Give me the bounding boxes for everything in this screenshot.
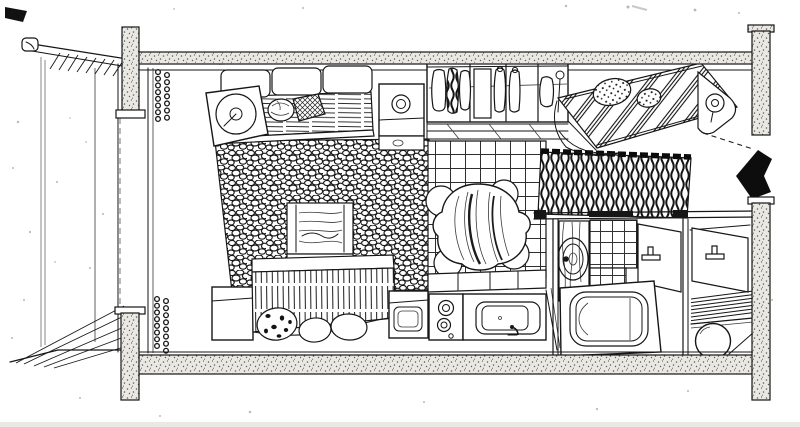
bathtub: [560, 281, 661, 356]
nightstand: [389, 291, 428, 338]
kitchen-sink: [463, 294, 546, 340]
scan-edge-band: [0, 422, 800, 427]
kitchen-cooktop: [429, 294, 463, 340]
sofa-back-cushion: [272, 68, 321, 95]
wash-basin: [696, 324, 731, 359]
kitchen: [428, 270, 560, 350]
floor-plan-drawing: [0, 0, 800, 427]
floor-plan-sketch: [0, 0, 800, 427]
top-wall-band: [137, 52, 755, 64]
closet-panel: [474, 69, 491, 118]
closet-jug: [540, 77, 554, 107]
right-wall-column: [752, 203, 770, 400]
hall-runner-rug: [538, 151, 691, 218]
kitchen-counter-back: [428, 270, 546, 292]
bottom-wall-band: [137, 355, 757, 374]
top-left-column: [122, 27, 139, 111]
bottom-left-column: [121, 313, 139, 400]
bathroom-tile-wall: [590, 220, 637, 268]
hanging-garment: [460, 71, 471, 111]
top-right-column: [752, 31, 770, 135]
hanging-garment: [432, 70, 446, 112]
utility-door: [692, 228, 748, 292]
coffee-table: [287, 203, 353, 259]
hanging-garment-dark: [447, 68, 459, 113]
dining-area: [426, 180, 530, 277]
cube-stool: [212, 287, 253, 340]
hanging-garment: [509, 70, 520, 112]
hanging-garment: [494, 68, 505, 112]
sofa-back-cushion: [323, 66, 372, 93]
sofa-side-table: [379, 84, 424, 150]
sofa-round-pillow: [268, 99, 294, 121]
